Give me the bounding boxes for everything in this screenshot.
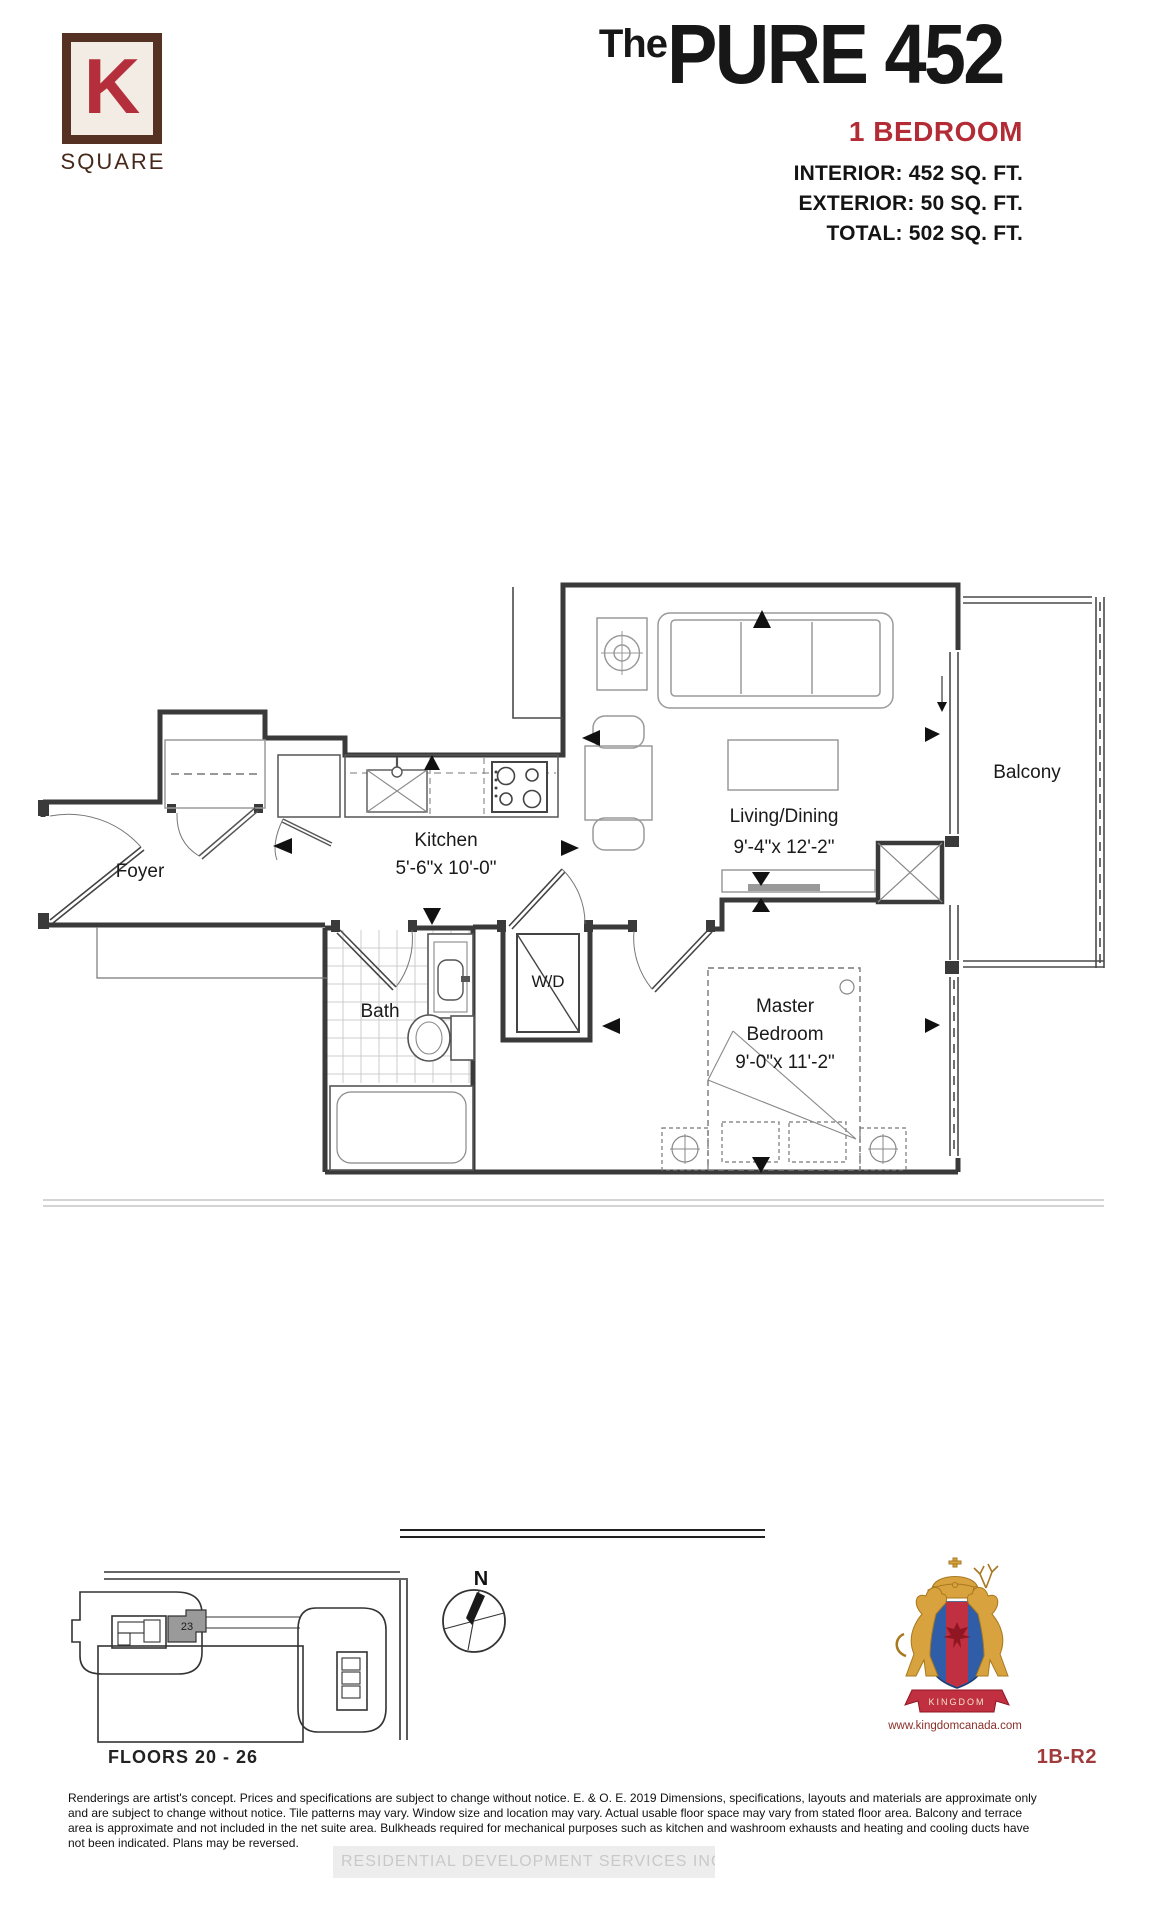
website-label: www.kingdomcanada.com bbox=[880, 1720, 1030, 1732]
room-label-wd: W/D bbox=[531, 972, 564, 991]
disclaimer-line: not been indicated. Plans may be reverse… bbox=[68, 1836, 1103, 1851]
room-label-master-1: Master bbox=[756, 996, 815, 1017]
foyer-closet bbox=[165, 740, 265, 859]
tv-console-icon bbox=[722, 870, 875, 892]
keyplan: 23 bbox=[72, 1572, 408, 1742]
toilet-icon bbox=[408, 1015, 474, 1061]
vanity-icon bbox=[428, 934, 473, 1018]
room-label-kitchen: Kitchen bbox=[414, 830, 477, 851]
room-label-bath: Bath bbox=[360, 1001, 399, 1022]
disclaimer-text: Renderings are artist's concept. Prices … bbox=[68, 1791, 1103, 1851]
sofa-icon bbox=[658, 613, 893, 708]
disclaimer-line: and are subject to change without notice… bbox=[68, 1806, 1103, 1821]
disclaimer-line: Renderings are artist's concept. Prices … bbox=[68, 1791, 1103, 1806]
bath-door bbox=[337, 930, 412, 990]
kitchen-sink-icon bbox=[367, 757, 427, 812]
window-walls bbox=[97, 587, 1104, 1156]
coffee-table-icon bbox=[728, 740, 838, 790]
bedroom-door bbox=[634, 929, 712, 992]
cooktop-icon bbox=[492, 762, 547, 812]
divider-line bbox=[400, 1530, 765, 1537]
washer-dryer bbox=[509, 869, 585, 1032]
room-dims-kitchen: 5'-6"x 10'-0" bbox=[395, 858, 496, 879]
nightstand-right bbox=[860, 1128, 906, 1170]
room-label-balcony: Balcony bbox=[993, 762, 1061, 783]
kitchen-counter bbox=[345, 755, 558, 817]
bathtub-icon bbox=[330, 1086, 473, 1170]
room-label-living: Living/Dining bbox=[730, 806, 839, 827]
unit-walls bbox=[43, 585, 958, 1172]
compass-n-label: N bbox=[474, 1568, 488, 1590]
crest-banner-label: KINGDOM bbox=[928, 1697, 985, 1707]
floors-range-label: FLOORS 20 - 26 bbox=[108, 1747, 258, 1768]
kingdom-crest-icon: KINGDOM bbox=[897, 1558, 1009, 1712]
keyplan-unit-number: 23 bbox=[181, 1621, 193, 1633]
room-label-master-2: Bedroom bbox=[746, 1024, 823, 1045]
room-dims-master: 9'-0"x 11'-2" bbox=[735, 1052, 835, 1073]
nightstand-left bbox=[662, 1128, 708, 1170]
compass-icon: N bbox=[443, 1568, 505, 1652]
floorplan-flyer: K SQUARE The PURE 452 1 BEDROOM INTERIOR… bbox=[0, 0, 1166, 1920]
disclaimer-line: area is approximate and not included in … bbox=[68, 1821, 1103, 1836]
room-label-foyer: Foyer bbox=[116, 861, 165, 882]
room-dims-living: 9'-4"x 12'-2" bbox=[733, 837, 834, 858]
unit-code: 1B-R2 bbox=[1037, 1746, 1097, 1769]
lower-edge-line bbox=[43, 1200, 1104, 1206]
floor-lamp-icon bbox=[597, 618, 647, 690]
floor-plan: Foyer Kitchen 5'-6"x 10'-0" Living/Dinin… bbox=[0, 0, 1166, 1920]
duct-shaft bbox=[878, 843, 942, 902]
